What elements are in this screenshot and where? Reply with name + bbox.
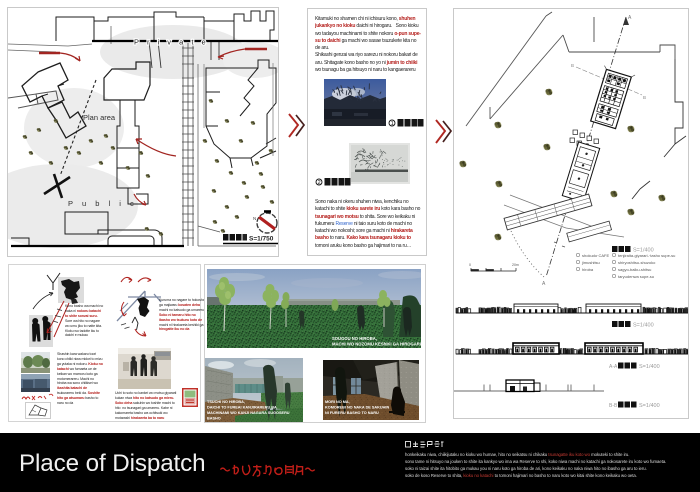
svg-text:A: A [628,15,632,21]
svg-text:taryudenwa supe-su: taryudenwa supe-su [618,274,654,279]
svg-text:A: A [542,281,546,287]
svg-text:N: N [253,216,256,221]
svg-text:S=1/400: S=1/400 [633,323,654,329]
svg-text:jimushitsu: jimushitsu [581,260,600,265]
svg-text:B-B: B-B [609,403,618,409]
svg-text:S=1/400: S=1/400 [639,403,660,409]
svg-text:S=1/750: S=1/750 [249,236,274,243]
svg-text:NI FURERU BASHO TO NARU: NI FURERU BASHO TO NARU [325,411,379,415]
svg-text:A-A: A-A [609,364,618,370]
svg-text:shokudo·CAFE: shokudo·CAFE [582,253,609,258]
svg-text:tenjiraita-giyarari-·tasho sup: tenjiraita-giyarari-·tasho supe-su [618,253,675,258]
svg-text:sagyo-baiku-shitsu: sagyo-baiku-shitsu [618,267,651,272]
svg-text:TSUCHI NO HIROBA,: TSUCHI NO HIROBA, [207,400,245,404]
svg-text:2: 2 [318,180,321,186]
svg-text:Plan area: Plan area [83,113,116,122]
svg-text:shiryoshitsu-shuzoko: shiryoshitsu-shuzoko [618,260,656,265]
svg-text:KOMOREBI NO NAKA DE SAKUHIN: KOMOREBI NO NAKA DE SAKUHIN [325,406,389,410]
svg-text:1: 1 [391,121,394,127]
svg-text:MORI NO MA,: MORI NO MA, [325,400,350,404]
svg-text:BASHO: BASHO [207,417,221,421]
svg-text:B: B [571,63,574,68]
svg-text:SOUGOU NO HIROBA,: SOUGOU NO HIROBA, [332,336,377,341]
svg-text:B: B [643,95,646,100]
svg-text:P r i v a t e: P r i v a t e [134,38,209,47]
svg-text:P u b l i c: P u b l i c [68,199,137,208]
svg-text:MACHINAMI WO KANJI NAGARA SUGO: MACHINAMI WO KANJI NAGARA SUGOSERU [207,411,290,415]
svg-text:0: 0 [469,263,471,267]
svg-text:MACHI WO NOZOMU KEShIKI GA HIR: MACHI WO NOZOMU KEShIKI GA HIROGARU BASH… [332,342,421,347]
svg-text:hiroba: hiroba [582,267,594,272]
svg-text:S=1/400: S=1/400 [639,364,660,370]
svg-text:DAICHI TO FUREAI KANJIRARERU B: DAICHI TO FUREAI KANJIRARERU BA [207,406,277,410]
svg-text:20m: 20m [512,263,519,267]
